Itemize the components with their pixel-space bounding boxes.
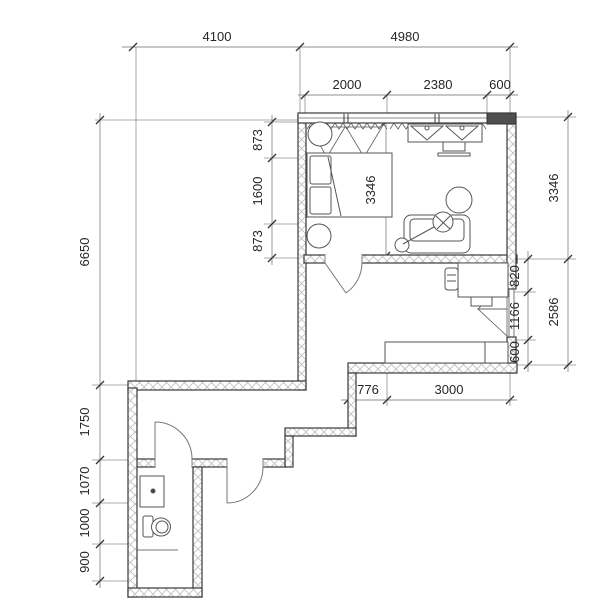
dim-label-inner-1600: 1600 xyxy=(250,177,265,206)
bedroom-door-swing-arc xyxy=(346,263,362,293)
dim-label-right-1166: 1166 xyxy=(507,302,522,330)
wall-hall-bottom-right xyxy=(263,459,285,467)
wall-bedroom-bottom-left xyxy=(304,255,325,263)
nightstand-symbol-top xyxy=(308,122,332,146)
curtain-triangle-right-2 xyxy=(478,309,507,336)
counter-symbol xyxy=(385,342,508,363)
dim-label-bottom-2: 3000 xyxy=(435,382,464,397)
sink-symbol xyxy=(140,476,164,507)
study-furniture xyxy=(385,263,508,363)
dim-label-inner-873b: 873 xyxy=(250,230,265,252)
dim-label-inner-873a: 873 xyxy=(250,129,265,151)
wall-step-b xyxy=(285,428,356,436)
bathroom-fixtures xyxy=(137,476,178,550)
dim-label-topsub-2: 2380 xyxy=(424,77,453,92)
dim-label-top-2: 4980 xyxy=(391,29,420,44)
bathroom-door-swing-arc xyxy=(155,422,192,459)
dim-label-bottom-1: 776 xyxy=(357,382,379,397)
wall-step-a xyxy=(348,373,356,436)
dim-label-right-820: 820 xyxy=(507,265,522,287)
wall-bedroom-left xyxy=(298,115,306,390)
dim-label-right-3346: 3346 xyxy=(546,174,561,203)
dim-label-left-900: 900 xyxy=(77,551,92,573)
dim-label-right-2586: 2586 xyxy=(546,298,561,327)
coffee-table-symbol xyxy=(446,187,472,213)
wall-hall-top xyxy=(128,381,306,390)
doors xyxy=(155,255,362,503)
dim-label-left-1000: 1000 xyxy=(77,509,92,538)
wall-hall-bottom-mid xyxy=(192,459,227,467)
pillow-2 xyxy=(310,187,331,214)
desk-chair-symbol xyxy=(445,268,458,290)
sink-drain xyxy=(151,489,155,493)
desk-drawer-symbol xyxy=(471,297,492,306)
wall-bathroom-bottom xyxy=(128,588,202,597)
lamp-base xyxy=(395,238,409,252)
bed-symbol xyxy=(307,153,392,217)
tv-stand-symbol xyxy=(443,142,465,151)
dim-label-topsub-3: 600 xyxy=(489,77,511,92)
dim-label-right-600: 600 xyxy=(507,341,522,363)
dim-label-top-1: 4100 xyxy=(203,29,232,44)
bedroom-furniture xyxy=(307,122,482,253)
nightstand-symbol-bottom xyxy=(307,224,331,248)
wardrobe-symbol xyxy=(408,124,482,156)
desk-symbol xyxy=(458,263,508,297)
wall-outer-left-lower xyxy=(128,388,137,597)
dim-label-interior-3346: 3346 xyxy=(363,176,378,205)
wall-bedroom-bottom-right xyxy=(362,255,517,263)
wall-top-solid-segment xyxy=(487,113,516,124)
bedroom-door-leaf xyxy=(325,263,346,293)
floor-plan-canvas: 4100 4980 2000 2380 600 776 3000 6650 17… xyxy=(0,0,603,615)
floor-plan-page: 4100 4980 2000 2380 600 776 3000 6650 17… xyxy=(0,0,603,615)
dim-label-left-1750: 1750 xyxy=(77,408,92,437)
dim-label-topsub-1: 2000 xyxy=(333,77,362,92)
dim-label-left-1070: 1070 xyxy=(77,467,92,496)
wall-step-c xyxy=(285,436,293,467)
pillow-1 xyxy=(310,156,331,184)
wall-bathroom-right xyxy=(193,467,202,597)
toilet-bowl-inner xyxy=(156,521,168,533)
bench-symbol xyxy=(438,153,470,156)
entry-door-swing-arc xyxy=(227,467,263,503)
dim-label-left-6650: 6650 xyxy=(77,238,92,267)
dimension-lines xyxy=(100,47,568,588)
toilet-symbol xyxy=(143,516,171,537)
wall-study-bottom xyxy=(348,363,517,373)
